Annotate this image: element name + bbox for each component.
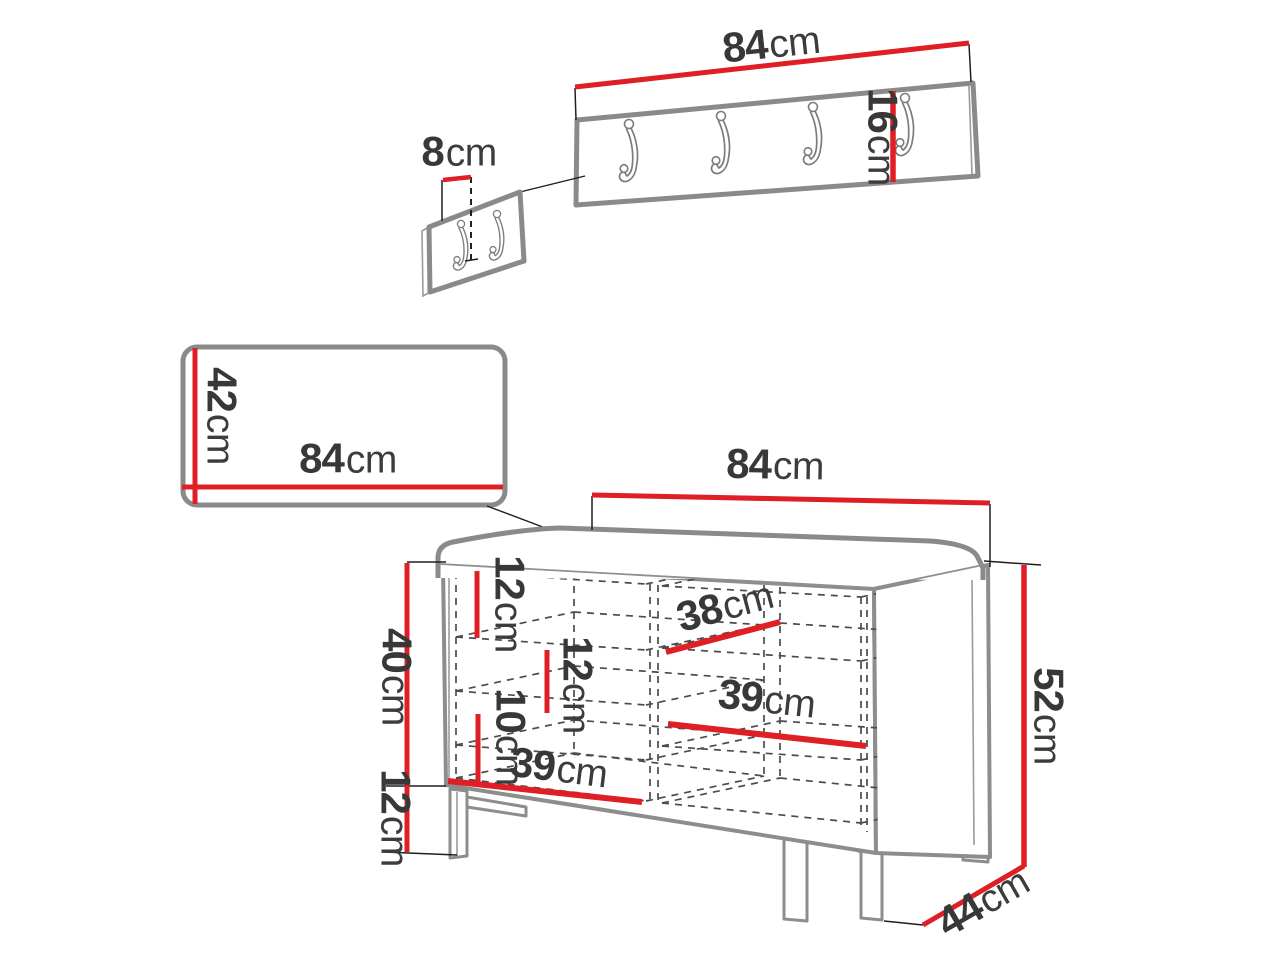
small-hook-panel: [422, 177, 524, 296]
bench-total-height-label: 52cm: [1025, 667, 1072, 765]
furniture-dimension-diagram: 84cm 16cm 8cm 42cm 84cm: [0, 0, 1280, 960]
hook-spacing-label: 8cm: [421, 128, 496, 175]
bench-depth-label: 44cm: [928, 857, 1036, 947]
upholstered-panel: 42cm 84cm: [182, 347, 505, 505]
bench-height-dimension: 52cm: [984, 561, 1072, 867]
gap-middle-label: 12cm: [554, 636, 601, 734]
bench-leg-height-label: 12cm: [372, 769, 419, 867]
wall-hanger-panel: [576, 83, 978, 205]
panel-width-label: 84cm: [299, 435, 397, 482]
rack-height-label: 16cm: [859, 88, 906, 186]
rack-height-dimension: 16cm: [859, 88, 906, 186]
bench-body-height-dimension: 40cm: [373, 562, 446, 786]
bench-width-label: 84cm: [726, 440, 825, 489]
panel-height-label: 42cm: [198, 367, 245, 465]
shoe-bench: 12cm 12cm 10cm 38cm 39cm 39cm: [438, 528, 990, 921]
bench-depth-dimension: 44cm: [884, 857, 1037, 947]
bench-body-height-label: 40cm: [373, 628, 420, 726]
gap-top-label: 12cm: [486, 555, 533, 653]
